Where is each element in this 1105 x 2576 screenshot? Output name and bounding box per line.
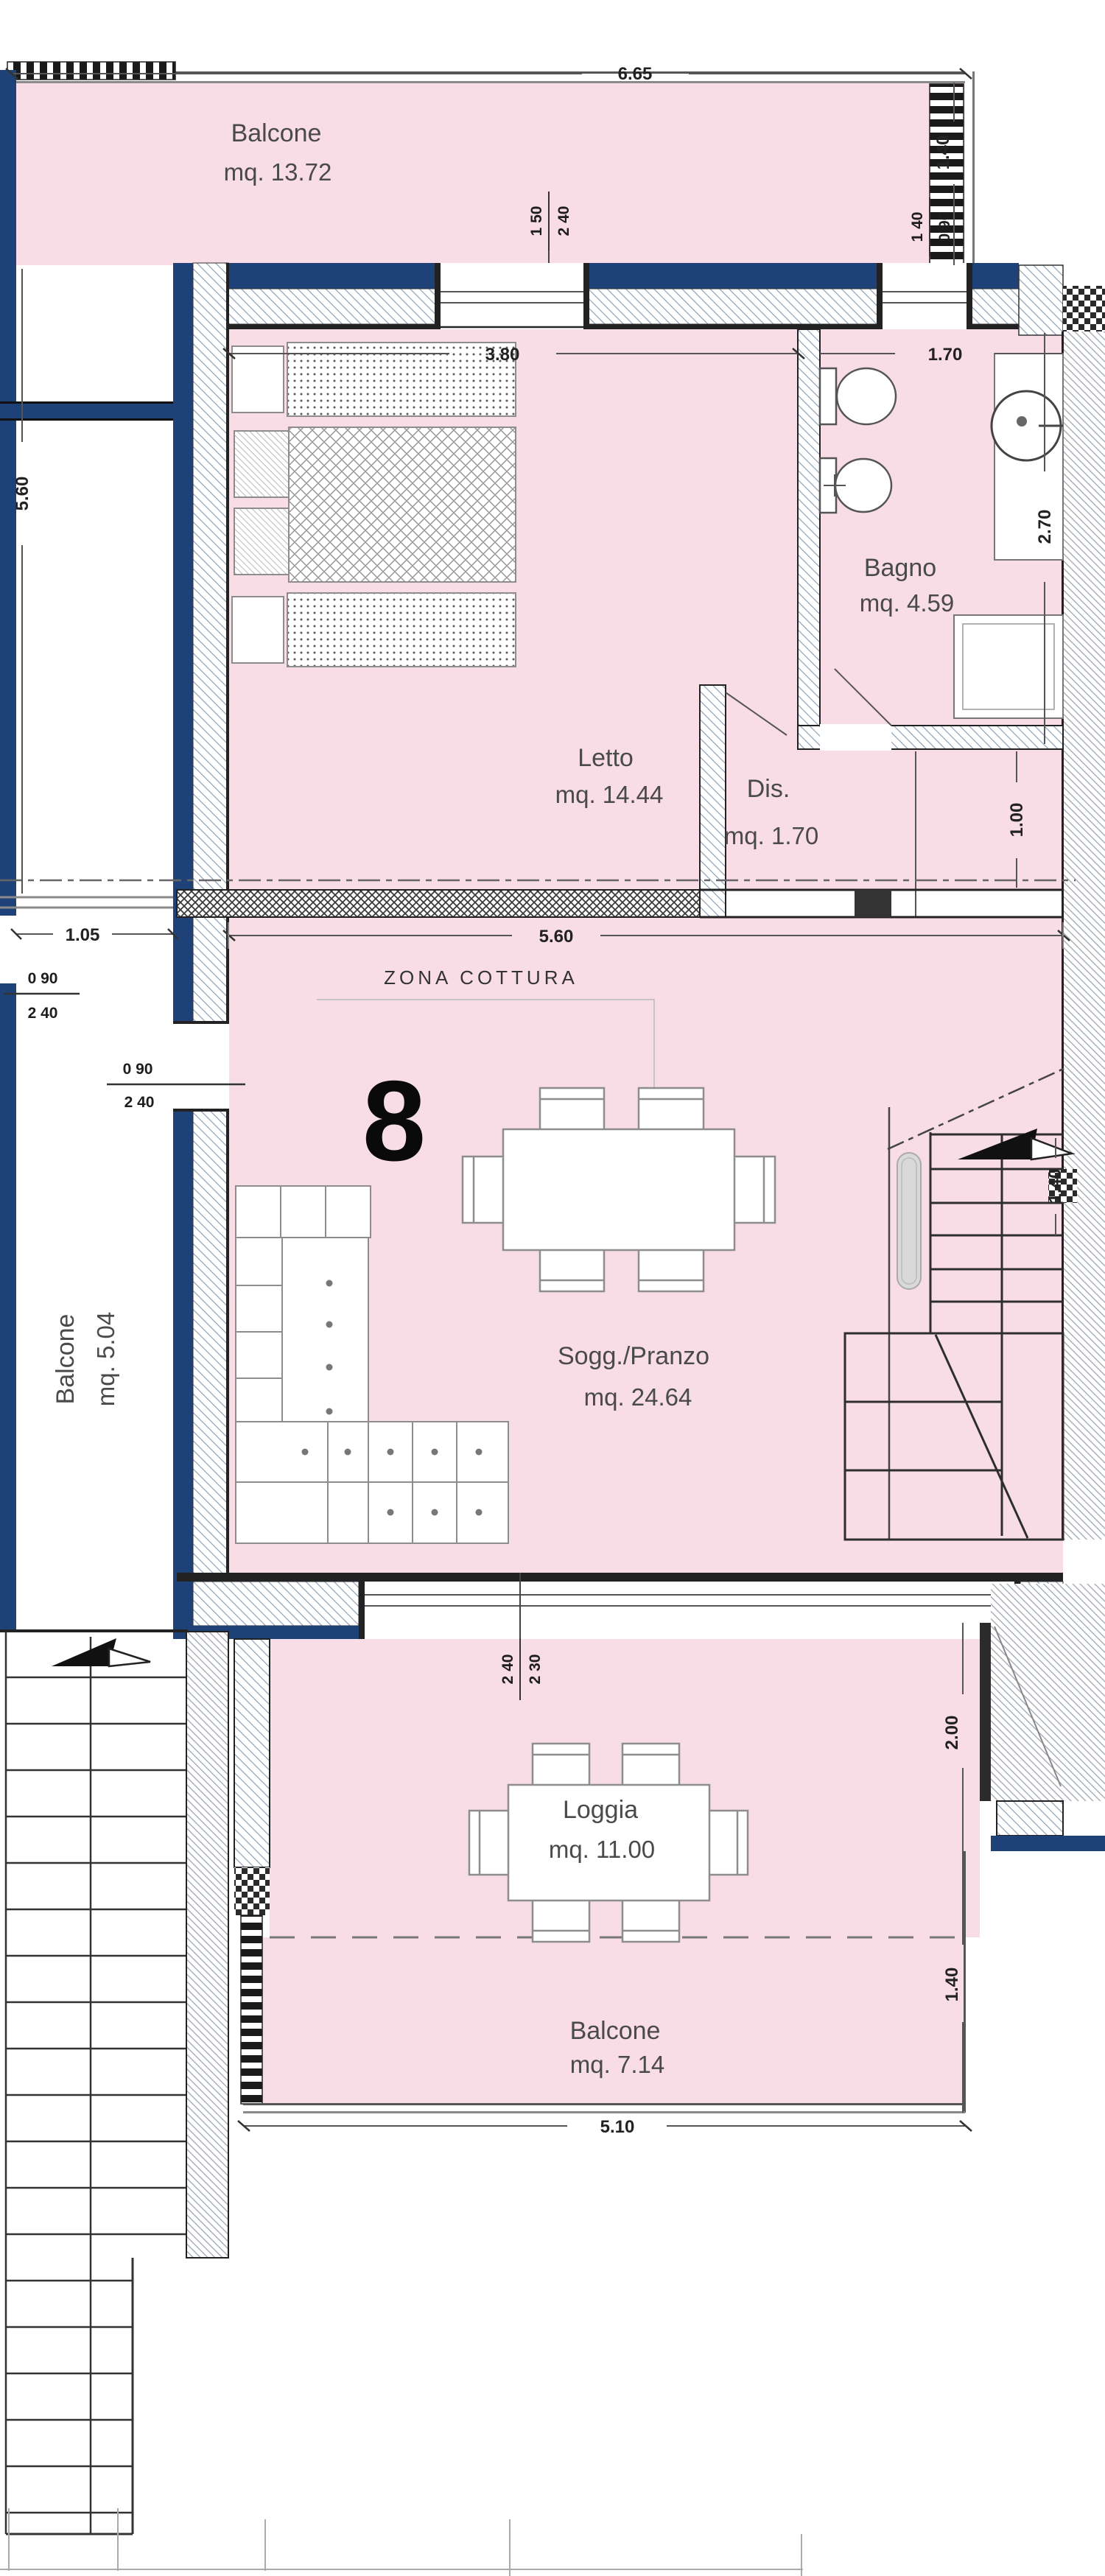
window-jamb (967, 263, 972, 329)
shower-icon (954, 615, 1063, 718)
balcone-top-area: mq. 13.72 (224, 158, 332, 186)
floor-plan-drawing: Balcone mq. 13.72 (0, 0, 1105, 2576)
balcone-left-area: mq. 5.04 (92, 1312, 119, 1406)
letto-label: Letto (578, 744, 634, 772)
bagno-left-wall (798, 329, 820, 749)
svg-text:2 30: 2 30 (527, 1654, 544, 1685)
zona-cottura-label: ZONA COTTURA (384, 966, 578, 989)
loggia-left-pillar (234, 1639, 270, 1867)
dim-bagno-depth: 2.70 (1035, 510, 1055, 544)
window-opening (359, 1582, 1020, 1639)
window-jamb (435, 263, 441, 329)
dim-dis-depth: 1.00 (1007, 803, 1027, 838)
balcone-top-label: Balcone (231, 119, 322, 147)
bottom-ticks (0, 2508, 803, 2576)
balcone-bottom-line2 (243, 2111, 965, 2113)
balcony-door-gap (173, 1024, 229, 1109)
rope-wall-band (177, 890, 700, 917)
corridor-top-lines (0, 897, 173, 908)
stub-line-b (0, 418, 177, 421)
neighbour-block (991, 1584, 1105, 1801)
dim-balcone-depth: 1.40 (942, 1968, 962, 2002)
dim-balcone-width: 5.10 (600, 2117, 635, 2137)
left-wall-door-gap (0, 916, 16, 983)
svg-text:1 50: 1 50 (528, 206, 545, 236)
balcony-right-outer-line (972, 71, 975, 269)
dim-corridor-width: 1.05 (66, 925, 100, 945)
dim-top-width: 6.65 (618, 64, 653, 84)
nightstand (232, 597, 284, 663)
window-letto (435, 263, 589, 329)
letto-area: mq. 14.44 (555, 781, 664, 808)
bed-foot-dotted (287, 593, 516, 667)
balcone-left: Balcone mq. 5.04 (0, 897, 173, 1406)
balcone-bottom-area: mq. 7.14 (570, 2051, 664, 2078)
stair-right-wall (186, 1632, 228, 2258)
svg-text:0 90: 0 90 (123, 1061, 153, 1078)
balcone-bottom-line (243, 2103, 965, 2105)
nightstand (232, 346, 284, 413)
svg-text:0 90: 0 90 (28, 970, 58, 987)
radiator-icon (897, 1153, 921, 1289)
dim-interior-width: 5.60 (539, 927, 574, 947)
soggiorno-label: Sogg./Pranzo (558, 1342, 709, 1370)
left-wall-navy (173, 263, 193, 1639)
soggiorno-area: mq. 24.64 (584, 1383, 692, 1411)
left-wall-stub (0, 404, 177, 418)
external-stair (0, 1629, 228, 2534)
bagno-label: Bagno (864, 554, 936, 582)
window-bagno (877, 263, 972, 329)
neighbour-hatch-column (1063, 331, 1105, 1540)
stair-arrow-outline (109, 1649, 150, 1666)
stair-treads-narrow (6, 2281, 133, 2513)
loggia-wall-end (997, 1801, 1063, 1836)
left-wall-face-line (226, 263, 229, 1639)
window-opening (877, 263, 972, 329)
dis-area: mq. 1.70 (724, 822, 818, 849)
stair-treads-wide (6, 1677, 186, 2234)
wc-icon (820, 368, 896, 424)
stub-line-a (0, 401, 177, 404)
bagno-area: mq. 4.59 (860, 589, 954, 617)
bidet-icon (820, 458, 891, 513)
window-jamb (359, 1582, 365, 1639)
corner-pillar-checker (1063, 286, 1105, 331)
dim-stair-width: 1.40 (1045, 1169, 1065, 1204)
top-wall-end-block (1019, 265, 1063, 335)
top-wall (177, 263, 1105, 335)
svg-text:0 90: 0 90 (936, 212, 953, 242)
svg-text:2 40: 2 40 (28, 1005, 58, 1022)
balcone-bottom-label: Balcone (570, 2017, 661, 2045)
balcone-left-label: Balcone (52, 1314, 80, 1405)
dim-side-height: 5.60 (13, 477, 32, 511)
balcony-edge-line2 (11, 81, 965, 83)
svg-text:2 40: 2 40 (124, 1094, 155, 1111)
dis-label: Dis. (747, 775, 790, 803)
dim-loggia-depth: 2.00 (942, 1716, 962, 1750)
railing-bottom-left (241, 1915, 262, 2104)
door-head (173, 1109, 229, 1112)
window-jamb (877, 263, 883, 329)
bagno-door-gap (820, 724, 891, 751)
wall-block (855, 890, 891, 917)
bed-mattress (289, 427, 516, 582)
stair-arrow-icon (52, 1638, 116, 1666)
dim-bagno-width: 1.70 (928, 345, 963, 365)
loggia-right-wall (980, 1623, 991, 1801)
wall-face-line (177, 1573, 1063, 1582)
dim-letto-width: 3.80 (485, 345, 520, 365)
svg-text:2 40: 2 40 (555, 206, 572, 236)
loggia-navy-band (991, 1836, 1105, 1851)
stair-narrow-edge (6, 2258, 133, 2534)
window-opening (435, 263, 589, 329)
door-head (173, 1021, 229, 1024)
loggia-area: mq. 11.00 (549, 1836, 655, 1863)
svg-text:2 40: 2 40 (499, 1654, 516, 1685)
window-jamb (583, 263, 589, 329)
dim-balcony-depth: 1.40 (933, 136, 953, 170)
left-blue-wall (0, 70, 16, 1632)
railing-top-left (7, 62, 175, 80)
pillow (234, 508, 289, 575)
loggia-pillar-checker (234, 1867, 270, 1915)
pillow (234, 431, 289, 497)
floor-plan-page: Balcone mq. 13.72 (0, 0, 1105, 2576)
balcone-right-line (964, 1851, 966, 2113)
stair-top-line (0, 1629, 188, 1632)
loggia-label: Loggia (563, 1796, 638, 1824)
wall-hatch-left (193, 1582, 359, 1626)
unit-number: 8 (362, 1057, 426, 1185)
left-wall-hatch (193, 263, 228, 1639)
letto-dis-partition (700, 685, 726, 917)
left-apartment-wall (173, 263, 229, 1639)
balcone-top-floor (11, 83, 965, 265)
left-outer-wall (0, 70, 177, 1632)
svg-text:1 40: 1 40 (909, 212, 926, 242)
